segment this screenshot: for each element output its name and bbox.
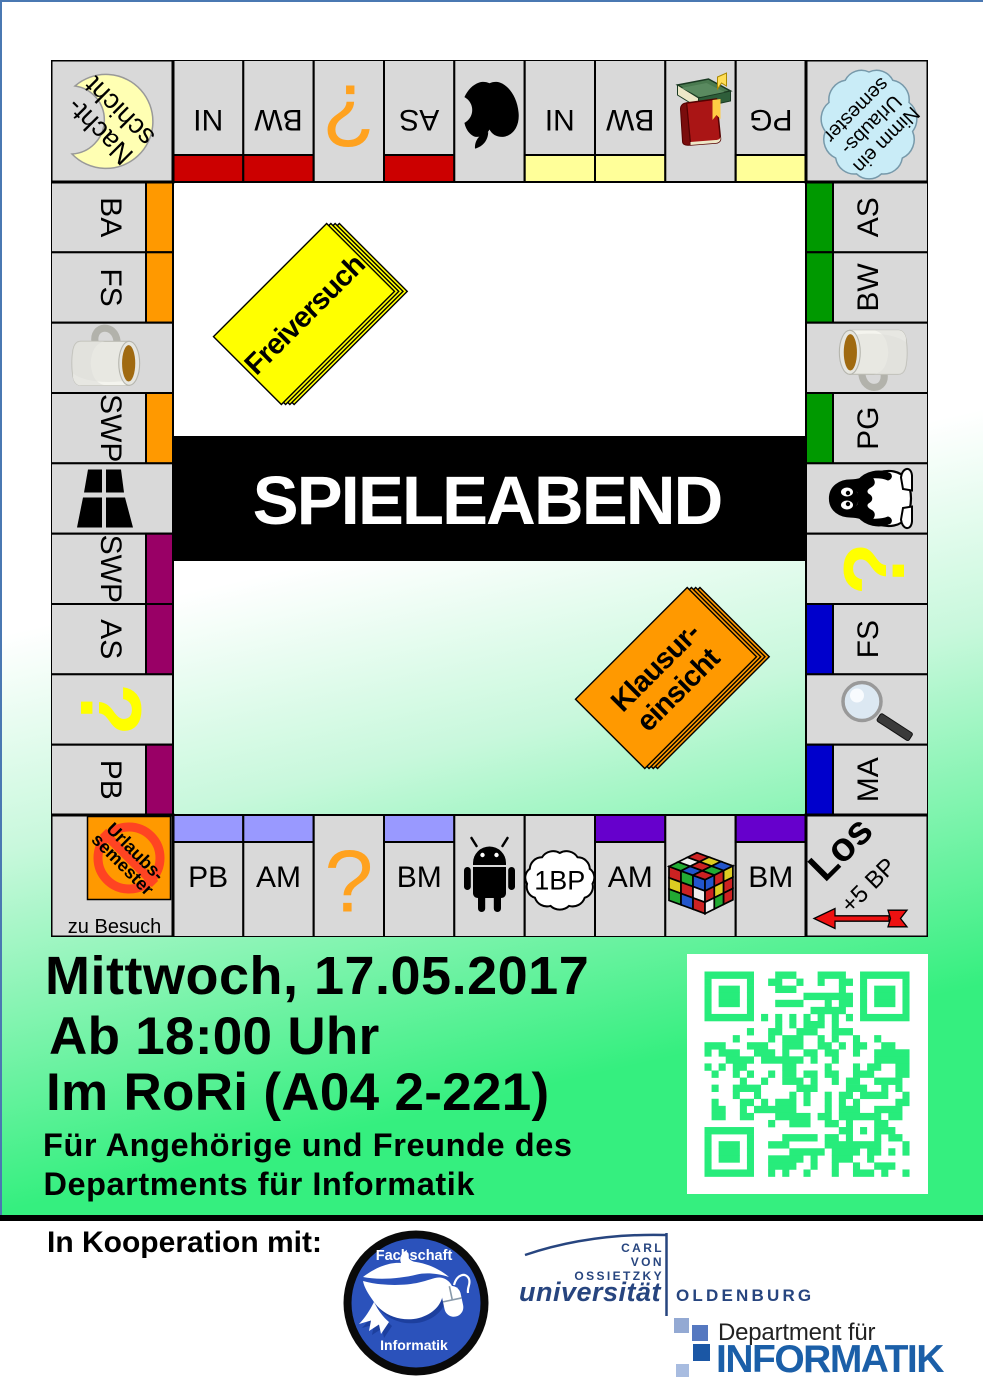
svg-text:SWP: SWP [94, 535, 127, 603]
svg-text:AS: AS [94, 619, 127, 659]
svg-text:SPIELEABEND: SPIELEABEND [253, 462, 722, 539]
svg-text:NI: NI [193, 103, 223, 136]
svg-text:BA: BA [94, 197, 127, 237]
svg-text:BW: BW [254, 103, 303, 136]
svg-text:PG: PG [749, 103, 792, 136]
svg-text:VON: VON [631, 1255, 664, 1269]
svg-text:PG: PG [852, 407, 885, 450]
svg-text:MA: MA [852, 757, 885, 802]
svg-text:FS: FS [852, 620, 885, 658]
svg-text:PB: PB [94, 760, 127, 800]
svg-text:BM: BM [748, 861, 793, 894]
svg-text:?: ? [324, 832, 373, 931]
svg-text:SWP: SWP [94, 394, 127, 462]
svg-text:BW: BW [605, 103, 654, 136]
svg-text:BW: BW [852, 263, 885, 312]
svg-text:CARL: CARL [621, 1241, 664, 1255]
svg-text:universität: universität [519, 1277, 662, 1307]
svg-text:INFORMATIK: INFORMATIK [716, 1338, 944, 1381]
svg-text:zu Besuch: zu Besuch [68, 916, 161, 937]
svg-text:PB: PB [188, 861, 228, 894]
svg-text:BM: BM [397, 861, 442, 894]
svg-text:?: ? [827, 543, 923, 596]
svg-text:NI: NI [545, 103, 575, 136]
svg-text:Informatik: Informatik [380, 1337, 448, 1353]
svg-text:AS: AS [399, 103, 439, 136]
svg-text:?: ? [324, 66, 373, 165]
svg-text:AS: AS [852, 197, 885, 237]
svg-text:?: ? [62, 683, 158, 736]
svg-text:AM: AM [608, 861, 653, 894]
svg-text:FS: FS [94, 268, 127, 306]
svg-text:AM: AM [256, 861, 301, 894]
svg-text:OLDENBURG: OLDENBURG [676, 1286, 814, 1305]
